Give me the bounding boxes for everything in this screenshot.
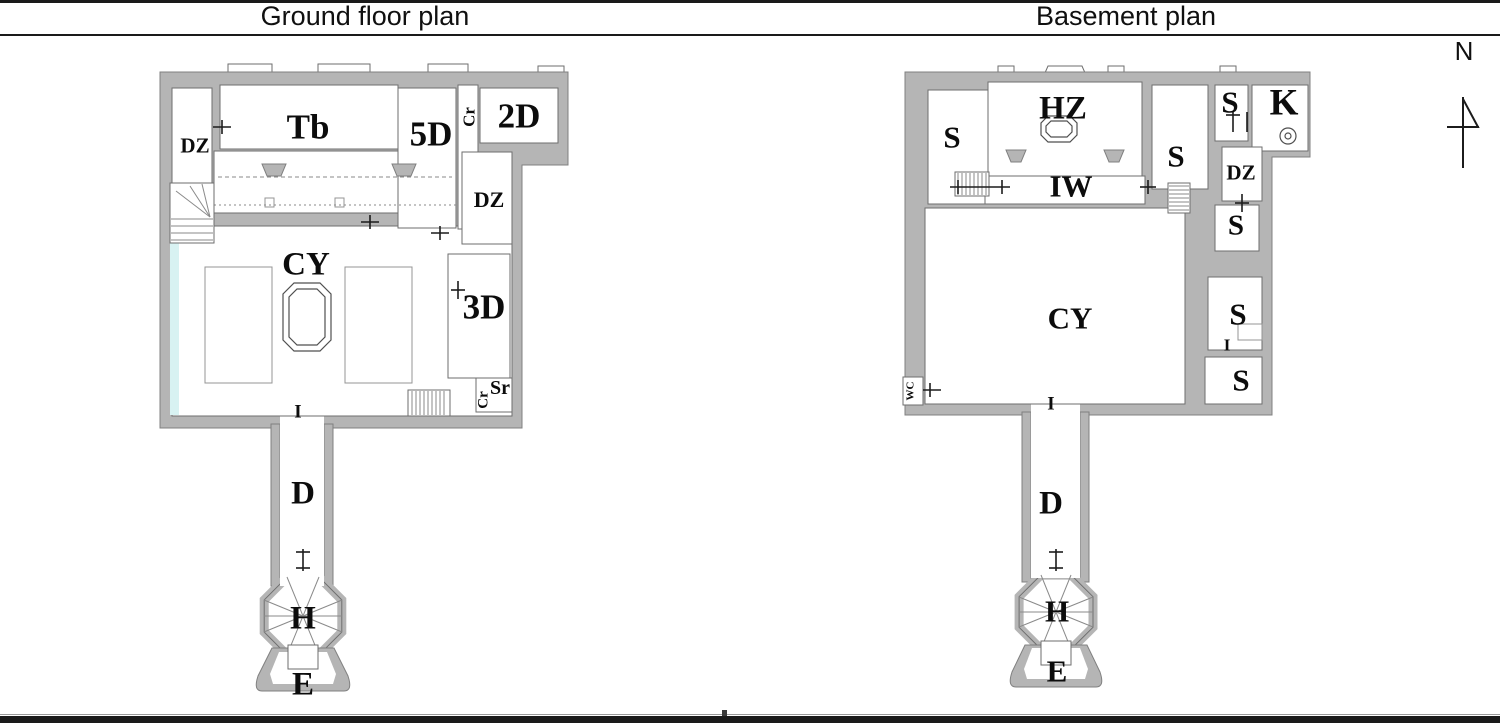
- basement-label-iw: IW: [1049, 171, 1092, 202]
- basement-label-s: S: [1229, 299, 1246, 330]
- ground-floor-label-h: H: [290, 603, 316, 636]
- bottom-rule-thin: [0, 714, 1500, 715]
- ground-floor-label-i: I: [294, 403, 301, 422]
- ground-stair-northwest: [170, 183, 214, 243]
- basement-label-s: S: [1228, 212, 1244, 241]
- basement-label-hz: HZ: [1039, 93, 1087, 126]
- basement-label-dz: DZ: [1226, 163, 1255, 184]
- basement-well: [1280, 128, 1296, 144]
- ground-floor-label-d: D: [291, 478, 315, 511]
- ground-corridor-wall-right: [324, 424, 333, 586]
- basement-label-s: S: [1221, 87, 1238, 118]
- basement-label-k: K: [1270, 85, 1299, 122]
- ground-water-channel: [170, 227, 179, 415]
- north-label: N: [1455, 36, 1474, 67]
- basement-corridor-wall-right: [1080, 412, 1089, 582]
- basement-label-wc: WC: [906, 382, 917, 401]
- ground-floor-label-cr: Cr: [461, 107, 478, 127]
- north-arrow-icon: [1447, 97, 1479, 168]
- ground-floor-label-cr: Cr: [477, 391, 492, 409]
- basement-label-s: S: [1167, 141, 1184, 172]
- ground-floor-label-5d: 5D: [410, 117, 453, 152]
- ground-floor-label-tb: Tb: [287, 110, 330, 145]
- basement-label-i: I: [1047, 395, 1054, 414]
- basement-label-s: S: [943, 122, 960, 153]
- ground-floor-label-e: E: [292, 669, 314, 702]
- bottom-rule: [0, 716, 1500, 723]
- ground-floor-label-cy: CY: [282, 249, 330, 282]
- basement-label-d: D: [1039, 488, 1063, 521]
- figure-page: Ground floor plan Basement plan: [0, 0, 1500, 725]
- basement-stair-east: [1168, 183, 1190, 213]
- ground-floor-label-sr: Sr: [490, 378, 510, 398]
- ground-floor-label-dz: DZ: [474, 189, 505, 211]
- ground-fountain: [283, 283, 331, 351]
- bottom-center-tick: [722, 710, 727, 716]
- basement-label-e: E: [1047, 656, 1068, 687]
- basement-label-h: H: [1045, 596, 1069, 627]
- basement-label-s: S: [1232, 365, 1249, 396]
- basement-stair-west: [955, 172, 989, 196]
- ground-corridor-wall-left: [271, 424, 280, 586]
- ground-floor-label-3d: 3D: [463, 290, 506, 325]
- ground-stair-southeast: [408, 390, 450, 416]
- basement-label-cy: CY: [1048, 303, 1093, 334]
- ground-floor-label-dz: DZ: [180, 136, 209, 157]
- basement-corridor-wall-left: [1022, 412, 1031, 582]
- ground-floor-label-2d: 2D: [498, 99, 541, 134]
- basement-label-i: I: [1224, 337, 1231, 354]
